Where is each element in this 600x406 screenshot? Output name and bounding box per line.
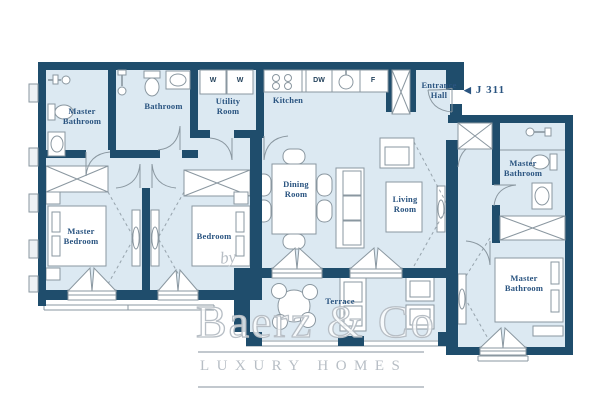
wall-reveal xyxy=(29,84,38,102)
sofa xyxy=(336,168,364,248)
radiator xyxy=(437,186,445,232)
room-label-dining-room: Dining Room xyxy=(276,179,316,199)
room-label-master-bedroom: Master Bedroom xyxy=(56,226,106,246)
room-label-master-bathroom-bottom: Master Bathroom xyxy=(498,273,550,293)
toilet-icon xyxy=(144,71,160,96)
sink-icon xyxy=(48,132,65,156)
sink-icon xyxy=(166,71,190,89)
wardrobe-icon xyxy=(46,166,108,192)
sink-icon xyxy=(532,183,552,209)
room-label-entrance-hall: Entrance Hall xyxy=(417,80,461,100)
closet-icon xyxy=(392,70,410,114)
radiator xyxy=(458,274,466,324)
room-label-living-room: Living Room xyxy=(386,194,424,214)
left-arrow-icon: ◀ xyxy=(464,85,471,96)
armchair xyxy=(380,138,414,168)
fridge-label: F xyxy=(360,77,386,84)
watermark-by: by xyxy=(219,247,237,269)
room-label-master-bathroom-left: Master Bathroom xyxy=(58,106,106,126)
wall-reveal xyxy=(29,240,38,258)
closet-icon xyxy=(458,123,492,149)
floor-plan: Master Bathroom Bathroom Utility Room Ki… xyxy=(0,0,600,406)
wardrobe-icon xyxy=(500,216,565,240)
washer-label: W xyxy=(200,77,226,84)
dishwasher-label: DW xyxy=(306,77,332,84)
watermark-tagline: LUXURY HOMES xyxy=(200,358,407,375)
watermark-divider xyxy=(198,386,424,388)
unit-number: ◀ J 311 xyxy=(464,84,505,96)
washer-label: W xyxy=(227,77,253,84)
watermark-brand: Baerz & Co xyxy=(196,295,436,348)
wall-reveal xyxy=(29,194,38,212)
wall-reveal xyxy=(29,276,38,292)
watermark-divider xyxy=(198,351,424,353)
unit-number-label: J 311 xyxy=(476,84,505,96)
room-label-kitchen: Kitchen xyxy=(262,95,314,105)
room-label-bedroom: Bedroom xyxy=(186,231,242,241)
room-label-master-bathroom-right: Master Bathroom xyxy=(500,158,546,178)
room-label-bathroom: Bathroom xyxy=(136,101,191,111)
wall-reveal xyxy=(29,148,38,166)
room-label-utility-room: Utility Room xyxy=(205,96,251,116)
